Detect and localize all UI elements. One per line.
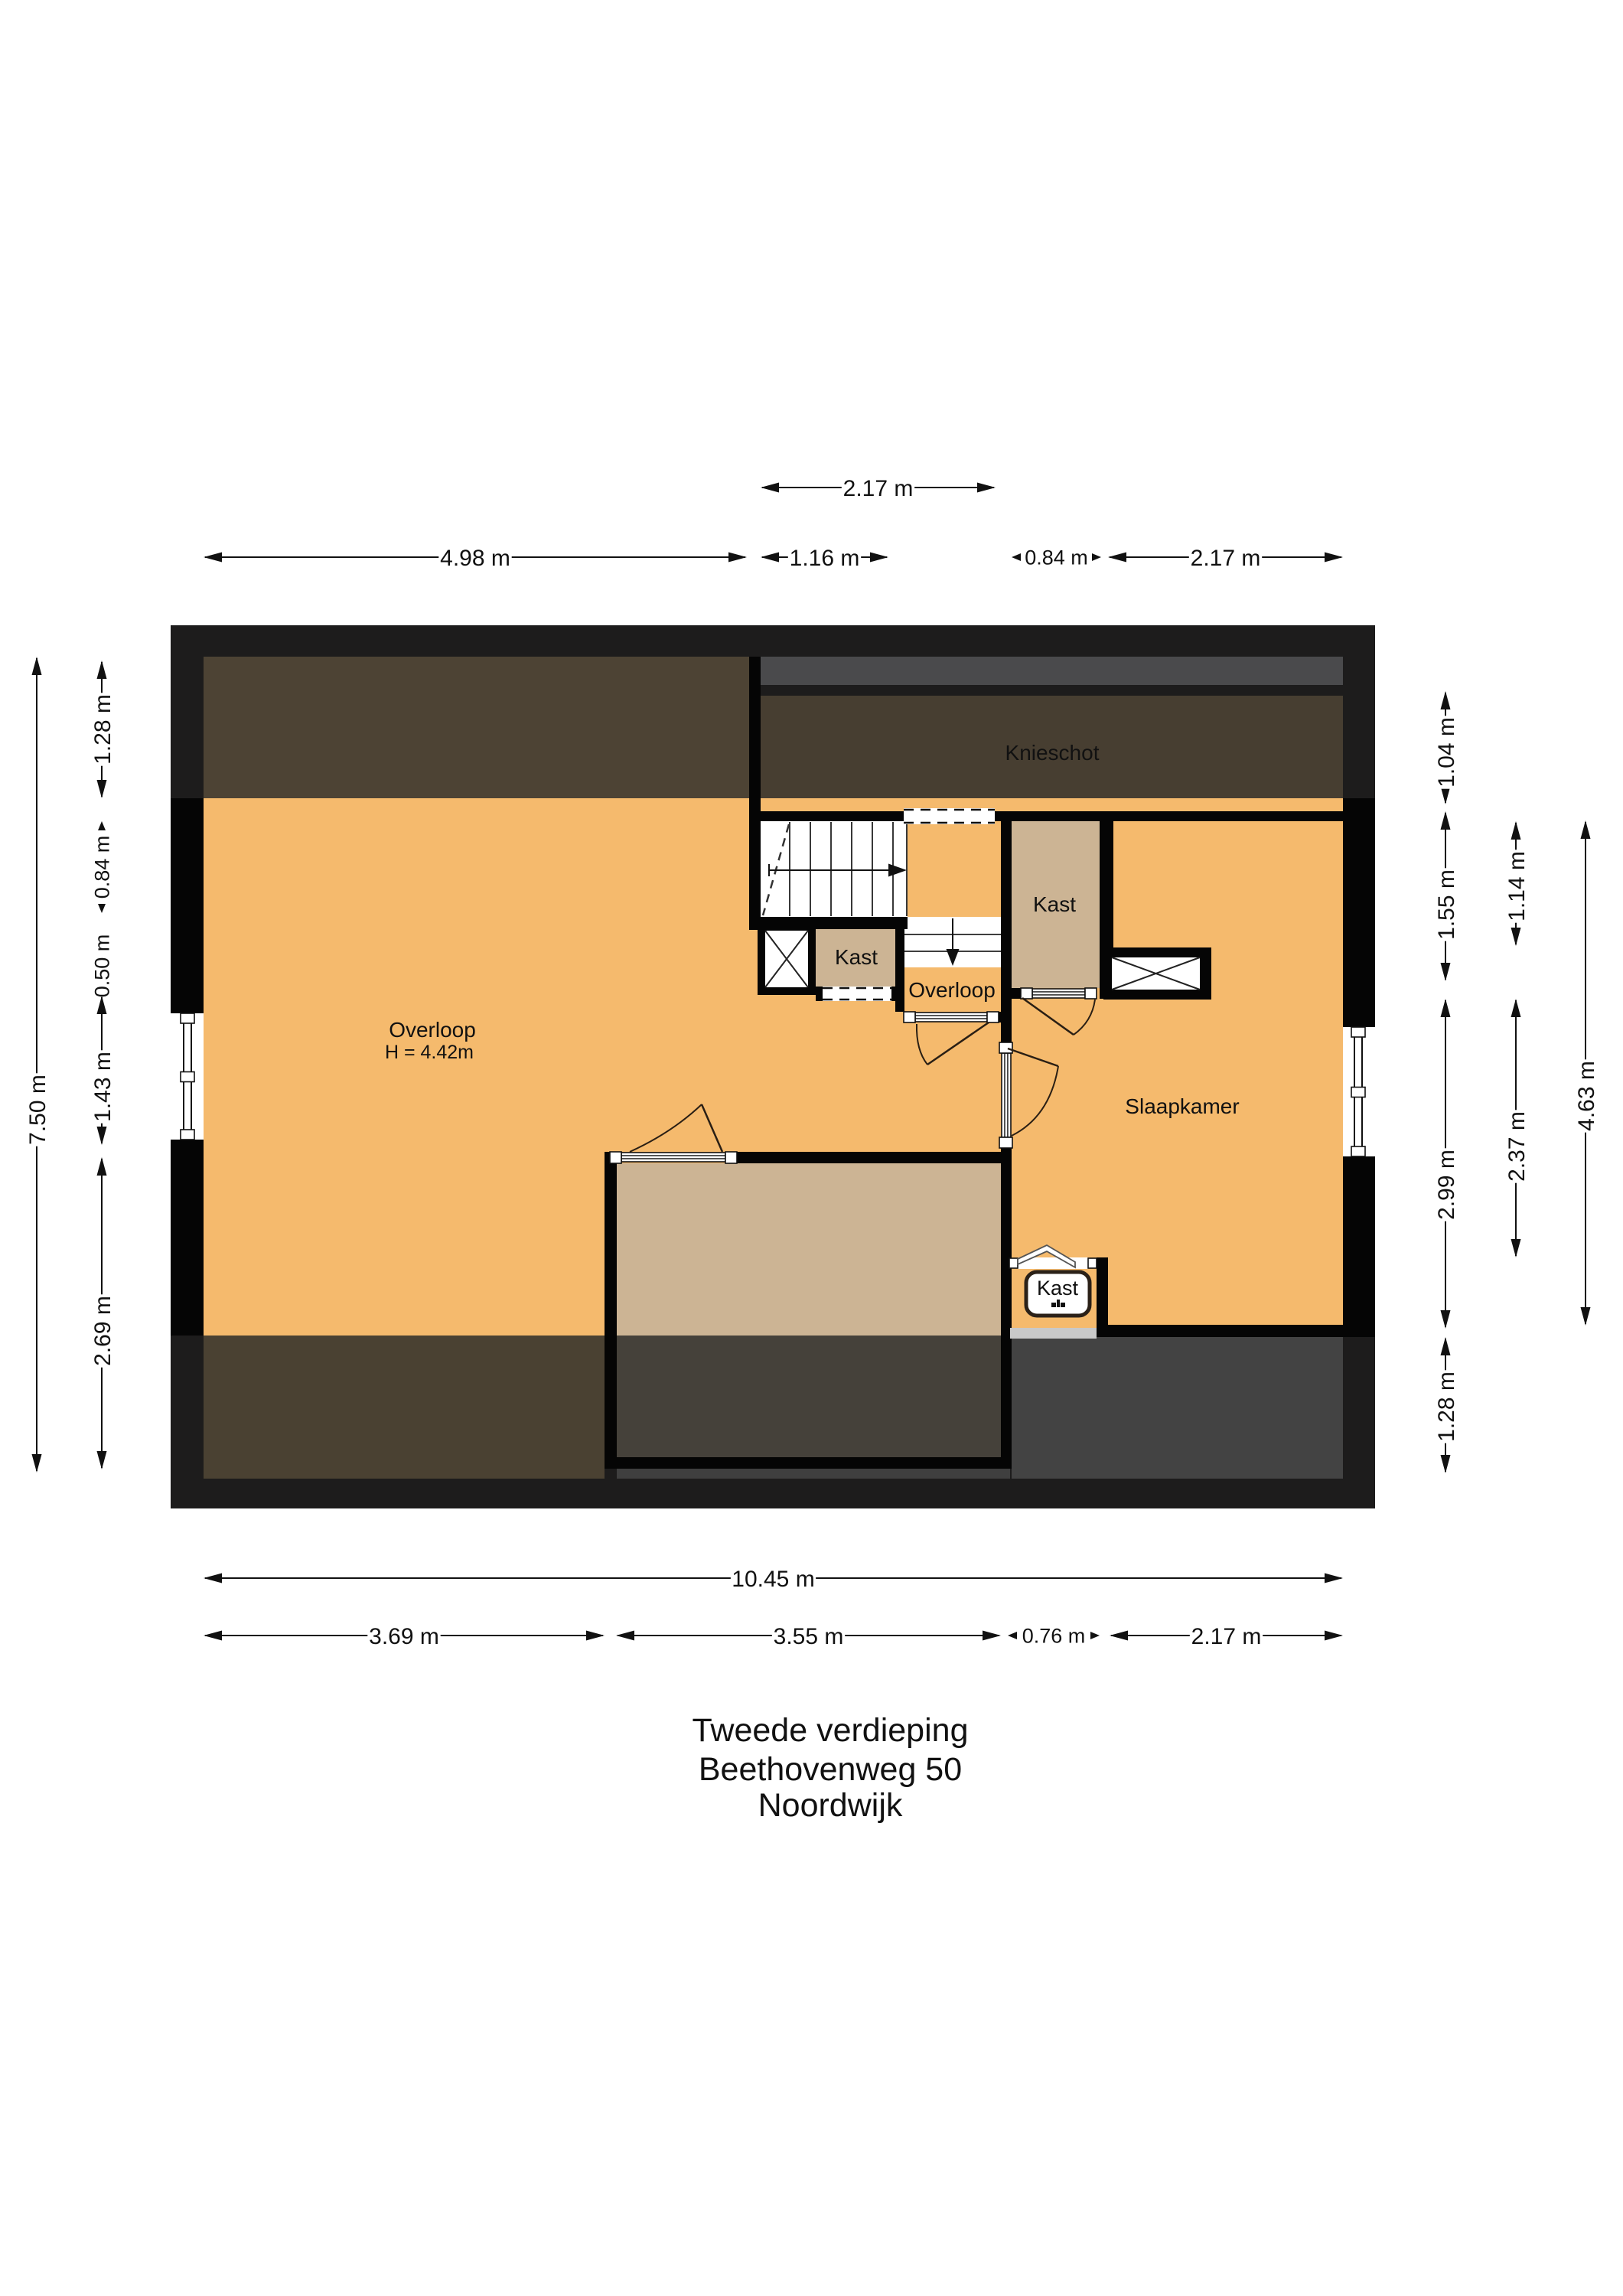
svg-text:2.17 m: 2.17 m [1191,1624,1262,1649]
svg-text:1.43 m: 1.43 m [90,1052,116,1122]
svg-text:1.55 m: 1.55 m [1434,869,1459,940]
svg-text:Tweede verdieping: Tweede verdieping [693,1712,969,1749]
svg-text:Slaapkamer: Slaapkamer [1125,1094,1239,1118]
svg-text:1.28 m: 1.28 m [1434,1371,1459,1442]
svg-text:2.17 m: 2.17 m [1191,546,1261,571]
svg-text:Kast: Kast [835,945,878,969]
svg-text:H = 4.42m: H = 4.42m [385,1042,474,1063]
svg-text:0.50 m: 0.50 m [91,934,114,998]
svg-text:3.55 m: 3.55 m [774,1624,844,1649]
svg-text:4.98 m: 4.98 m [440,546,510,571]
svg-text:3.69 m: 3.69 m [369,1624,439,1649]
svg-text:1.04 m: 1.04 m [1434,717,1459,788]
svg-text:7.50 m: 7.50 m [25,1075,51,1145]
svg-text:2.69 m: 2.69 m [90,1296,116,1366]
svg-text:Beethovenweg 50: Beethovenweg 50 [699,1751,962,1788]
svg-text:1.14 m: 1.14 m [1504,851,1530,921]
svg-text:2.17 m: 2.17 m [843,476,914,501]
svg-text:1.28 m: 1.28 m [90,694,116,765]
svg-text:2.37 m: 2.37 m [1504,1111,1530,1182]
svg-text:4.63 m: 4.63 m [1574,1061,1599,1131]
svg-text:Kast: Kast [1033,892,1076,916]
svg-text:1.16 m: 1.16 m [790,546,860,571]
svg-text:0.84 m: 0.84 m [1025,546,1088,569]
svg-text:Overloop: Overloop [908,978,996,1002]
svg-text:Kast: Kast [1037,1277,1079,1300]
svg-text:Overloop: Overloop [389,1018,476,1042]
svg-text:Knieschot: Knieschot [1005,741,1100,765]
svg-text:2.99 m: 2.99 m [1434,1150,1459,1220]
svg-text:0.76 m: 0.76 m [1022,1625,1086,1648]
svg-text:Noordwijk: Noordwijk [758,1787,903,1824]
svg-text:10.45 m: 10.45 m [732,1567,814,1592]
svg-text:0.84 m: 0.84 m [91,836,114,899]
